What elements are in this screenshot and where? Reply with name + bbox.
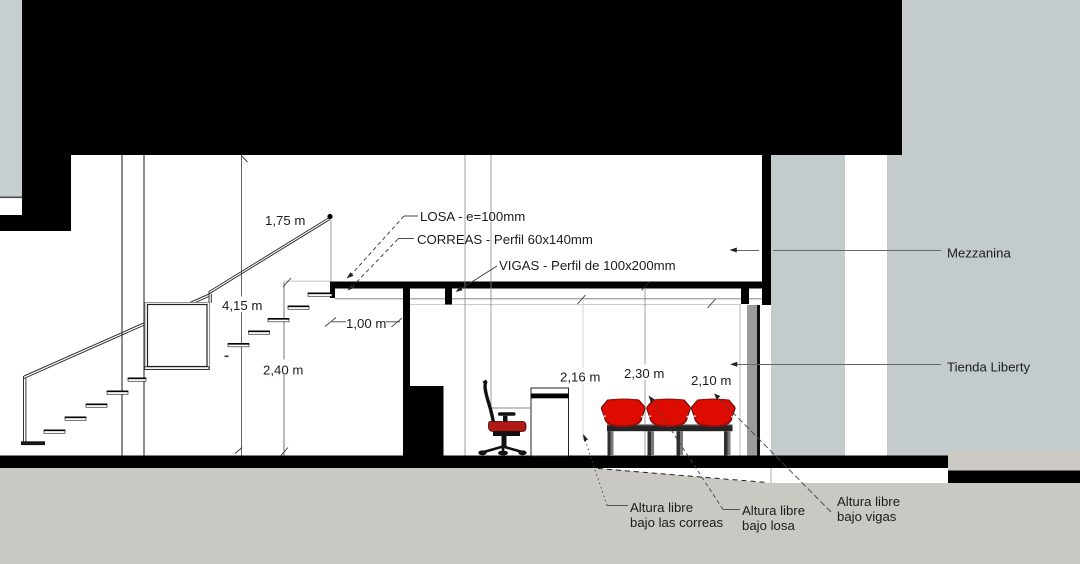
svg-text:Altura libre: Altura libre — [742, 503, 805, 518]
svg-text:2,10 m: 2,10 m — [691, 373, 731, 388]
svg-text:bajo vigas: bajo vigas — [837, 509, 897, 524]
svg-text:Altura libre: Altura libre — [837, 494, 900, 509]
svg-text:LOSA - e=100mm: LOSA - e=100mm — [420, 209, 525, 224]
svg-text:VIGAS - Perfil de 100x200mm: VIGAS - Perfil de 100x200mm — [499, 258, 676, 273]
svg-text:1,00 m: 1,00 m — [346, 316, 386, 331]
svg-text:2,16 m: 2,16 m — [560, 370, 600, 385]
svg-text:2,30 m: 2,30 m — [624, 366, 664, 381]
svg-text:2,40 m: 2,40 m — [263, 363, 303, 378]
svg-text:bajo losa: bajo losa — [742, 518, 795, 533]
svg-text:Altura libre: Altura libre — [630, 500, 693, 515]
svg-text:CORREAS - Perfil 60x140mm: CORREAS - Perfil 60x140mm — [417, 232, 593, 247]
svg-text:bajo las correas: bajo las correas — [630, 515, 723, 530]
svg-text:Tienda Liberty: Tienda Liberty — [947, 360, 1030, 375]
svg-text:4,15 m: 4,15 m — [222, 298, 262, 313]
svg-text:Mezzanina: Mezzanina — [947, 246, 1011, 261]
svg-text:1,75 m: 1,75 m — [265, 213, 305, 228]
